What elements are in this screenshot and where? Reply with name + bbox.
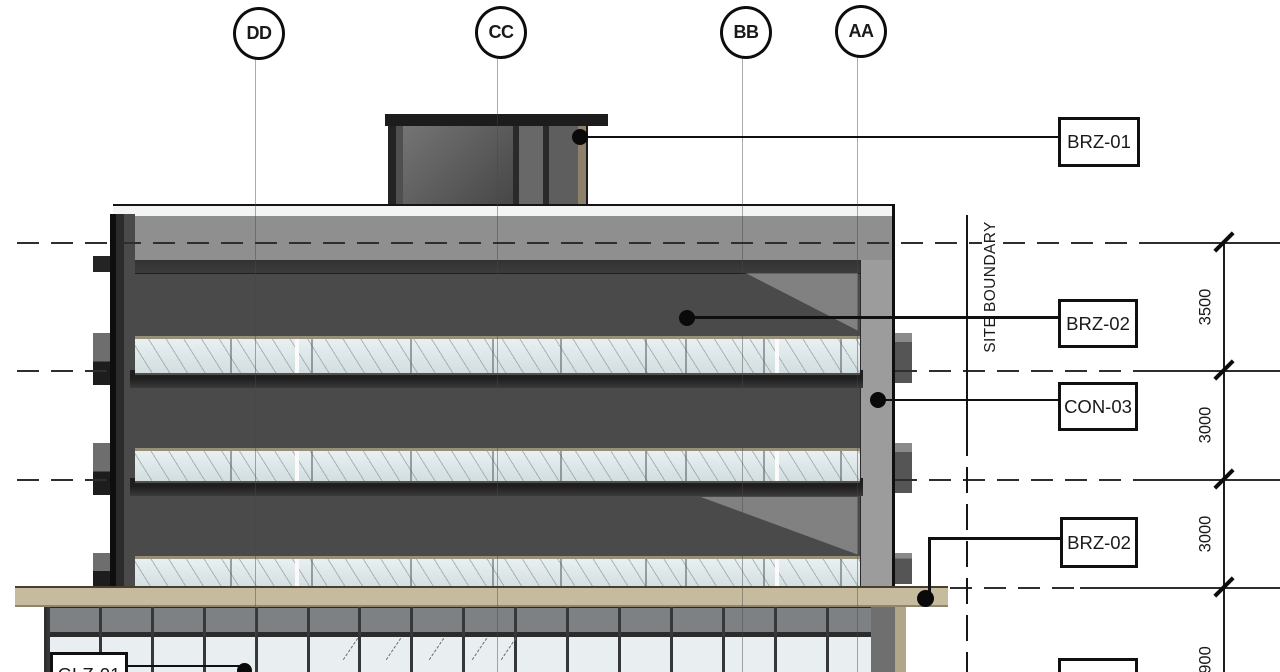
dimension-value: 900 [1197, 645, 1216, 672]
balustrade-joint [230, 451, 232, 481]
curtain-wall-mullion [358, 605, 361, 672]
left-edge-wall [110, 214, 135, 586]
balustrade-joint [645, 339, 647, 373]
right-balcony-return [895, 443, 912, 493]
level-line [1140, 479, 1280, 481]
callout-label: BRZ-02 [1067, 532, 1131, 554]
leader-line [122, 665, 242, 667]
balustrade-post [295, 339, 299, 373]
grid-bubble-CC: CC [475, 6, 527, 59]
left-balcony-return [93, 553, 110, 586]
callout-brz01: BRZ-01 [1058, 117, 1140, 167]
balustrade-post [775, 339, 779, 373]
balustrade-joint [685, 339, 687, 373]
balustrade-joint [840, 451, 842, 481]
leader-dot [237, 663, 252, 672]
grid-bubble-label: DD [247, 23, 272, 44]
elevation-drawing: →←→←→←→←→←→← DD CC BB AA SITE BOUNDARY 3… [0, 0, 1280, 672]
balustrade-joint [645, 559, 647, 589]
balustrade-joint [410, 559, 412, 589]
spandrel-band [47, 605, 898, 635]
balustrade-joint [763, 339, 765, 373]
dimension-value: 3000 [1197, 515, 1216, 554]
balustrade-joint [492, 339, 494, 373]
balustrade-joint [410, 451, 412, 481]
roof-panel [396, 126, 403, 204]
site-boundary-label: SITE BOUNDARY [982, 219, 1000, 355]
balustrade-joint [763, 451, 765, 481]
curtain-wall-mullion [826, 605, 829, 672]
canopy [15, 586, 948, 607]
leader-line [878, 399, 1058, 401]
roof-plant-enclosure [388, 126, 588, 204]
leader-dot [917, 590, 934, 607]
corner-shadow [871, 605, 895, 672]
balustrade-post [775, 559, 779, 589]
balustrade-joint [230, 339, 232, 373]
curtain-wall-mullion [462, 605, 465, 672]
callout-brz02-lower: BRZ-02 [1060, 517, 1138, 568]
level-line [1140, 242, 1280, 244]
balustrade-joint [645, 451, 647, 481]
right-edge-line [892, 204, 895, 600]
level-line [17, 370, 110, 372]
grid-line-BB [742, 52, 743, 672]
callout-label: BRZ-01 [1067, 131, 1131, 153]
balustrade-post [775, 451, 779, 481]
shadow-highlight [700, 497, 858, 555]
left-balcony-return [93, 333, 110, 385]
leader-dot [572, 129, 588, 145]
balustrade-joint [230, 559, 232, 589]
callout-brz02-upper: BRZ-02 [1058, 299, 1138, 348]
curtain-wall-mullion [307, 605, 310, 672]
parapet-cladding-band [118, 216, 893, 260]
callout-label: GLZ-01 [58, 655, 121, 672]
leader-line [687, 316, 1058, 319]
leader-line [585, 136, 1058, 138]
curtain-wall-mullion [151, 605, 154, 672]
roof-panel [519, 126, 543, 204]
leader-dot [870, 392, 886, 408]
leader-line [928, 537, 1060, 540]
left-balcony-return [93, 256, 110, 272]
balustrade-joint [311, 559, 313, 589]
grid-bubble-label: BB [734, 22, 759, 43]
balustrade-joint [492, 559, 494, 589]
curtain-wall-mullion [774, 605, 777, 672]
dimension-value: 3500 [1197, 288, 1216, 327]
balustrade-joint [560, 451, 562, 481]
curtain-wall-mullion [203, 605, 206, 672]
grid-bubble-DD: DD [233, 7, 285, 60]
right-return-wall [860, 260, 894, 586]
site-boundary-line [966, 215, 968, 430]
balustrade-post [295, 451, 299, 481]
site-boundary-line [966, 430, 968, 672]
right-balcony-return [895, 553, 912, 584]
leader-line [928, 537, 931, 595]
roof-panel [388, 126, 396, 204]
ground-floor-glazing [44, 605, 898, 672]
level-line [17, 479, 110, 481]
transom-rail [47, 632, 898, 637]
grid-bubble-label: CC [489, 22, 514, 43]
grid-line-AA [857, 52, 858, 672]
curtain-wall-mullion [618, 605, 621, 672]
balustrade-joint [311, 451, 313, 481]
balustrade-joint [840, 339, 842, 373]
left-balcony-return [93, 443, 110, 495]
shadow-highlight [745, 273, 858, 331]
callout-label: BRZ-02 [1066, 313, 1130, 335]
balustrade-joint [560, 559, 562, 589]
curtain-wall-mullion [722, 605, 725, 672]
level-line [17, 242, 1258, 244]
fascia-band [135, 260, 862, 274]
balustrade-joint [560, 339, 562, 373]
balustrade-joint [685, 451, 687, 481]
balustrade-joint [840, 559, 842, 589]
balustrade-joint [410, 339, 412, 373]
corner-column [895, 605, 906, 672]
leader-dot [679, 310, 695, 326]
grid-bubble-BB: BB [720, 6, 772, 59]
grid-bubble-label: AA [849, 21, 874, 42]
level-line [1080, 587, 1280, 589]
balustrade-joint [763, 559, 765, 589]
dimension-line [1223, 241, 1225, 672]
balustrade-post [295, 559, 299, 589]
level-line [1140, 370, 1280, 372]
balustrade-joint [685, 559, 687, 589]
dimension-value: 3000 [1197, 406, 1216, 445]
callout-con03: CON-03 [1058, 382, 1138, 431]
callout-label: CON-03 [1064, 396, 1132, 418]
curtain-wall-mullion [566, 605, 569, 672]
grid-line-CC [497, 52, 498, 672]
balustrade-joint [492, 451, 494, 481]
balustrade-joint [311, 339, 313, 373]
grid-line-DD [255, 52, 256, 672]
callout-glz01: GLZ-01 [50, 652, 128, 672]
curtain-wall-mullion [410, 605, 413, 672]
curtain-wall-mullion [670, 605, 673, 672]
grid-bubble-AA: AA [835, 5, 887, 58]
right-balcony-return [895, 333, 912, 383]
callout-partial [1058, 658, 1138, 672]
